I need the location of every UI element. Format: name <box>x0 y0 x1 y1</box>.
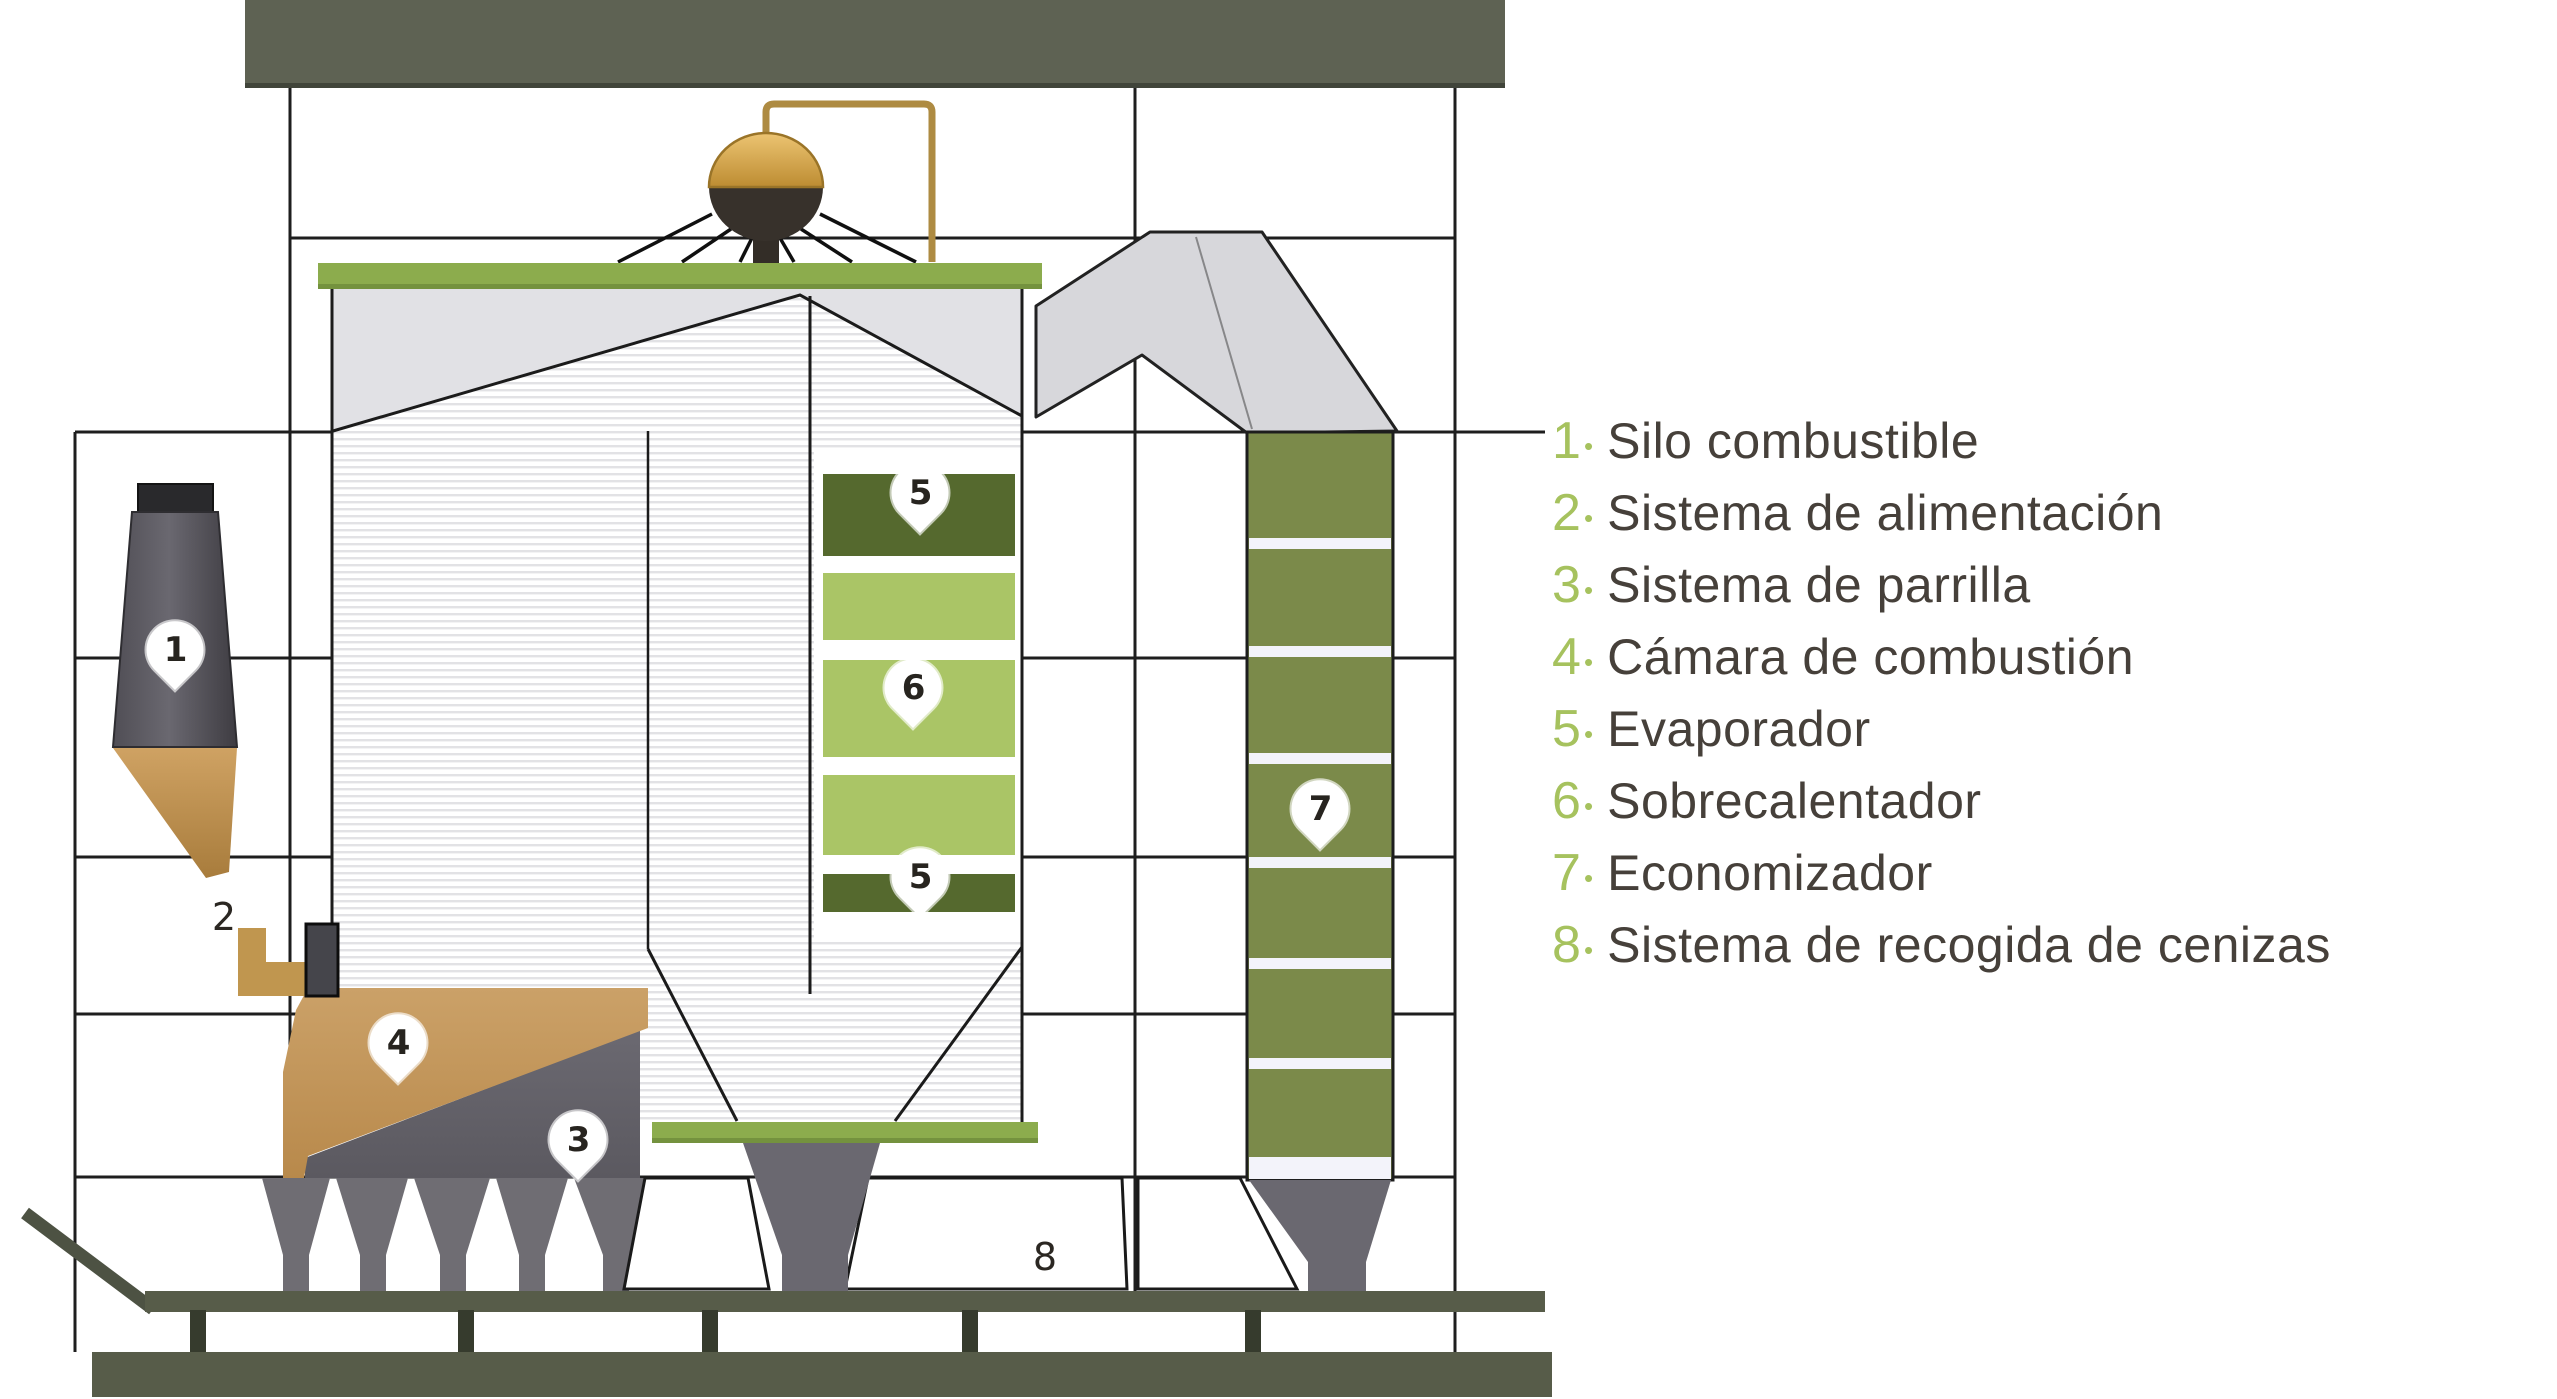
legend-number: 2 <box>1552 487 1582 539</box>
marker-4-label: 4 <box>386 1026 410 1060</box>
flue-gas-duct <box>1036 232 1397 433</box>
legend-item-combustion: 4•Cámara de combustión <box>1552 621 2331 693</box>
legend-number: 5 <box>1552 703 1582 755</box>
legend-item-alimentacion: 2•Sistema de alimentación <box>1552 477 2331 549</box>
ash-ramp <box>25 1213 153 1309</box>
ash-conveyor <box>145 1291 1545 1312</box>
grate-ash-hoppers <box>262 1178 656 1292</box>
marker-8-label: 8 <box>1033 1238 1057 1276</box>
legend-number: 3 <box>1552 559 1582 611</box>
legend-item-evaporador: 5•Evaporador <box>1552 693 2331 765</box>
boiler-top-header <box>318 263 1042 289</box>
legend-item-economizador: 7•Economizador <box>1552 837 2331 909</box>
legend-bullet-icon: • <box>1584 505 1593 531</box>
conveyor-supports <box>190 1310 1261 1352</box>
floor-beam <box>92 1352 1552 1397</box>
legend-label: Evaporador <box>1607 704 1871 754</box>
superheater-bank-1 <box>823 573 1015 640</box>
legend: 1•Silo combustible 2•Sistema de alimenta… <box>1552 405 2331 981</box>
boiler-bottom-header <box>652 1122 1038 1143</box>
legend-number: 8 <box>1552 919 1582 971</box>
legend-item-silo: 1•Silo combustible <box>1552 405 2331 477</box>
feed-elbow <box>238 928 306 996</box>
marker-5-top-label: 5 <box>908 476 932 510</box>
legend-label: Sistema de recogida de cenizas <box>1607 920 2331 970</box>
marker-7-label: 7 <box>1308 792 1332 826</box>
legend-number: 6 <box>1552 775 1582 827</box>
marker-2-label: 2 <box>212 898 236 936</box>
superheater-bank-3 <box>823 775 1015 855</box>
fuel-silo <box>113 484 237 747</box>
legend-bullet-icon: • <box>1584 433 1593 459</box>
legend-item-sobrecalentador: 6•Sobrecalentador <box>1552 765 2331 837</box>
legend-label: Sistema de parrilla <box>1607 560 2031 610</box>
legend-bullet-icon: • <box>1584 577 1593 603</box>
legend-bullet-icon: • <box>1584 937 1593 963</box>
legend-label: Silo combustible <box>1607 416 1979 466</box>
legend-item-cenizas: 8•Sistema de recogida de cenizas <box>1552 909 2331 981</box>
legend-label: Sobrecalentador <box>1607 776 1981 826</box>
legend-bullet-icon: • <box>1584 865 1593 891</box>
legend-label: Economizador <box>1607 848 1933 898</box>
legend-bullet-icon: • <box>1584 649 1593 675</box>
steam-drum <box>618 133 916 264</box>
marker-5-bottom-label: 5 <box>908 860 932 894</box>
marker-6-label: 6 <box>901 671 925 705</box>
legend-number: 1 <box>1552 415 1582 467</box>
biomass-boiler-diagram: 1 2 3 4 5 6 5 7 8 1•Silo combustible 2•S… <box>0 0 2557 1399</box>
legend-number: 4 <box>1552 631 1582 683</box>
legend-item-parrilla: 3•Sistema de parrilla <box>1552 549 2331 621</box>
marker-3-label: 3 <box>566 1123 590 1157</box>
ceiling-beam <box>245 0 1505 88</box>
marker-1-label: 1 <box>163 633 187 667</box>
legend-bullet-icon: • <box>1584 793 1593 819</box>
legend-label: Cámara de combustión <box>1607 632 2134 682</box>
legend-number: 7 <box>1552 847 1582 899</box>
legend-bullet-icon: • <box>1584 721 1593 747</box>
feed-port <box>306 924 338 996</box>
ash-collection-hoppers <box>624 1178 1297 1289</box>
legend-label: Sistema de alimentación <box>1607 488 2163 538</box>
